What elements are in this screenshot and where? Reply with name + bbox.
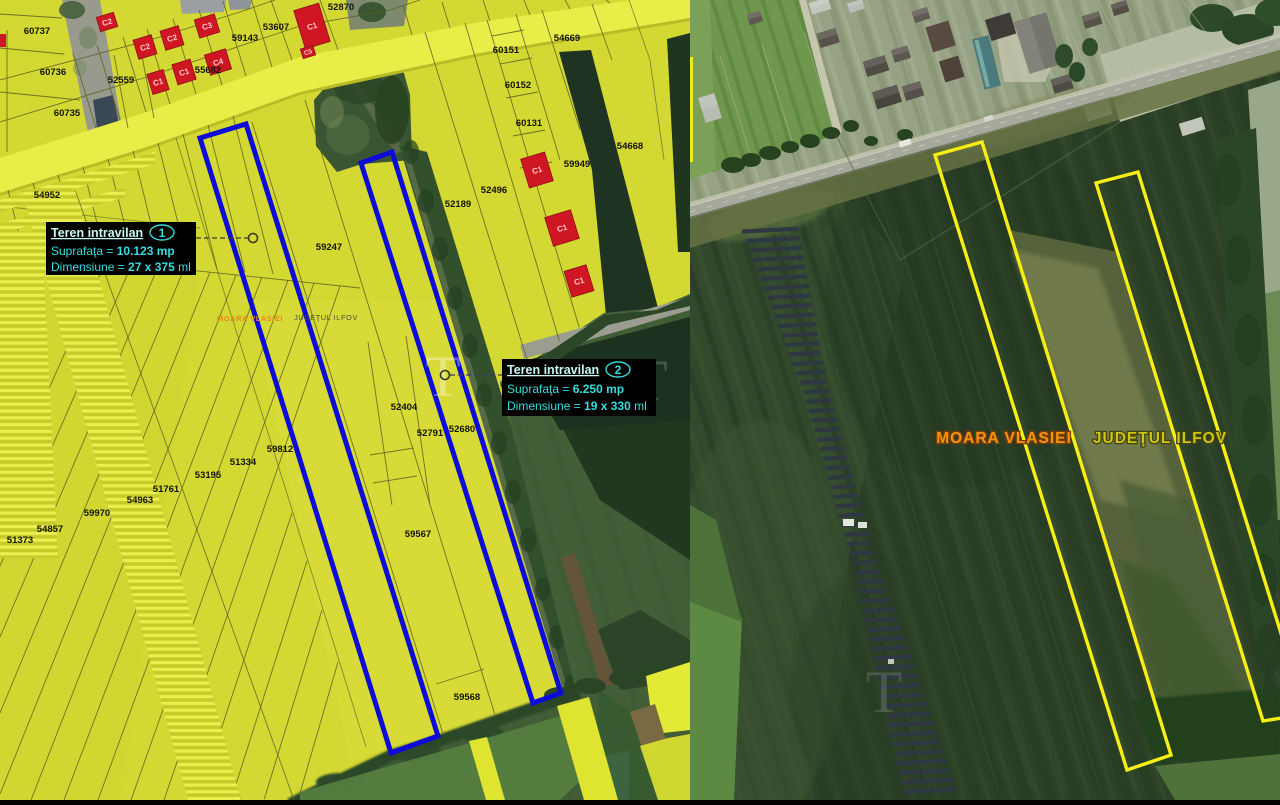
svg-text:55682: 55682	[195, 65, 221, 76]
svg-text:52870: 52870	[328, 2, 354, 13]
svg-text:60735: 60735	[54, 108, 81, 119]
svg-text:54963: 54963	[127, 495, 153, 506]
svg-text:54668: 54668	[617, 141, 643, 152]
svg-text:T: T	[425, 344, 460, 409]
svg-text:52559: 52559	[108, 75, 134, 86]
svg-text:51373: 51373	[7, 535, 33, 546]
svg-text:59567: 59567	[405, 529, 431, 540]
svg-text:54952: 54952	[34, 190, 60, 201]
svg-text:52404: 52404	[391, 402, 418, 413]
svg-text:59970: 59970	[84, 508, 110, 519]
svg-text:60131: 60131	[516, 118, 543, 129]
svg-text:54857: 54857	[37, 524, 63, 535]
svg-text:Suprafaţa = 10.123 mp: Suprafaţa = 10.123 mp	[51, 244, 175, 258]
svg-text:Dimensiune = 27 x 375 ml: Dimensiune = 27 x 375 ml	[51, 260, 191, 274]
svg-text:59812: 59812	[267, 444, 293, 455]
svg-text:53607: 53607	[263, 22, 289, 33]
svg-text:52791: 52791	[417, 428, 444, 439]
svg-text:Dimensiune = 19 x 330 ml: Dimensiune = 19 x 330 ml	[507, 399, 647, 413]
svg-text:52680: 52680	[449, 424, 475, 435]
svg-text:1: 1	[159, 226, 166, 240]
svg-text:59949: 59949	[564, 159, 590, 170]
svg-text:59143: 59143	[232, 33, 258, 44]
svg-text:54669: 54669	[554, 33, 580, 44]
svg-text:51334: 51334	[230, 457, 257, 468]
svg-text:Teren intravilan: Teren intravilan	[51, 226, 143, 240]
svg-text:60736: 60736	[40, 67, 66, 78]
svg-text:MOARA VLASIEI: MOARA VLASIEI	[217, 314, 283, 323]
svg-text:53195: 53195	[195, 470, 222, 481]
svg-text:Suprafaţa = 6.250 mp: Suprafaţa = 6.250 mp	[507, 382, 624, 396]
svg-text:Teren intravilan: Teren intravilan	[507, 363, 599, 377]
svg-text:52189: 52189	[445, 199, 471, 210]
svg-text:59247: 59247	[316, 242, 342, 253]
svg-text:JUDEŢUL ILFOV: JUDEŢUL ILFOV	[1093, 430, 1227, 447]
svg-text:60151: 60151	[493, 45, 520, 56]
svg-text:60152: 60152	[505, 80, 531, 91]
svg-text:MOARA VLASIEI: MOARA VLASIEI	[936, 430, 1072, 447]
svg-text:2: 2	[615, 363, 622, 377]
svg-text:51761: 51761	[153, 484, 180, 495]
svg-text:T: T	[866, 659, 903, 725]
svg-text:JUDEŢUL ILFOV: JUDEŢUL ILFOV	[294, 313, 358, 322]
svg-text:60737: 60737	[24, 26, 50, 37]
svg-text:59568: 59568	[454, 692, 480, 703]
svg-text:52496: 52496	[481, 185, 507, 196]
